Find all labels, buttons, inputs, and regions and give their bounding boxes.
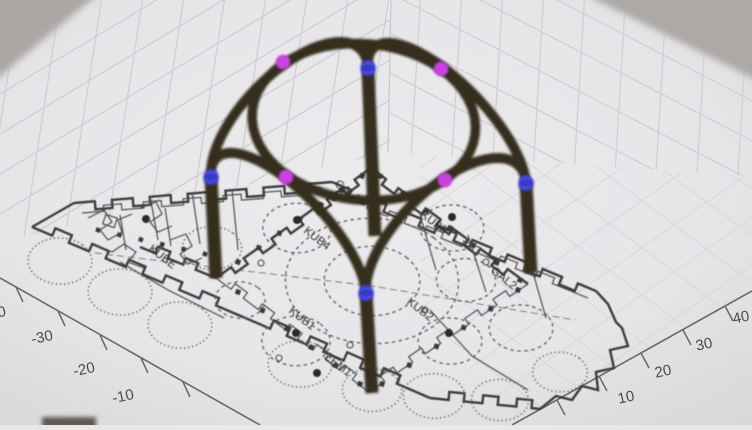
svg-text:40: 40 [731,308,751,328]
svg-text:20: 20 [653,362,673,382]
svg-text:10: 10 [616,388,636,408]
svg-text:30: 30 [694,335,714,355]
